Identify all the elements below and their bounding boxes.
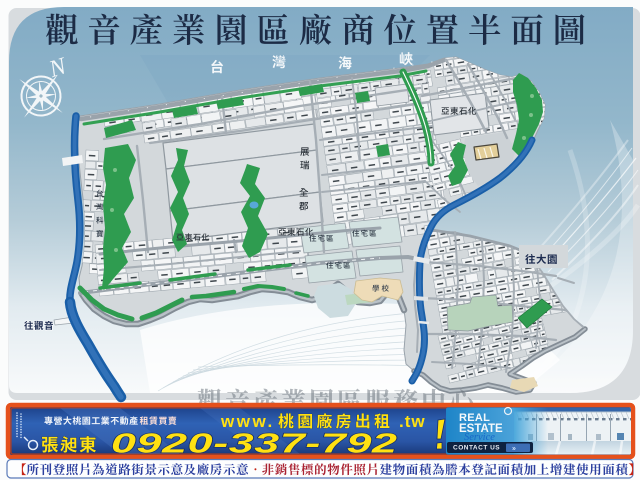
svg-text:»: » (512, 446, 516, 453)
svg-text:0920-337-792: 0920-337-792 (111, 427, 398, 458)
svg-text:Service: Service (464, 432, 495, 443)
svg-text:CONTACT US: CONTACT US (453, 445, 500, 452)
svg-text:.tw: .tw (399, 412, 426, 431)
